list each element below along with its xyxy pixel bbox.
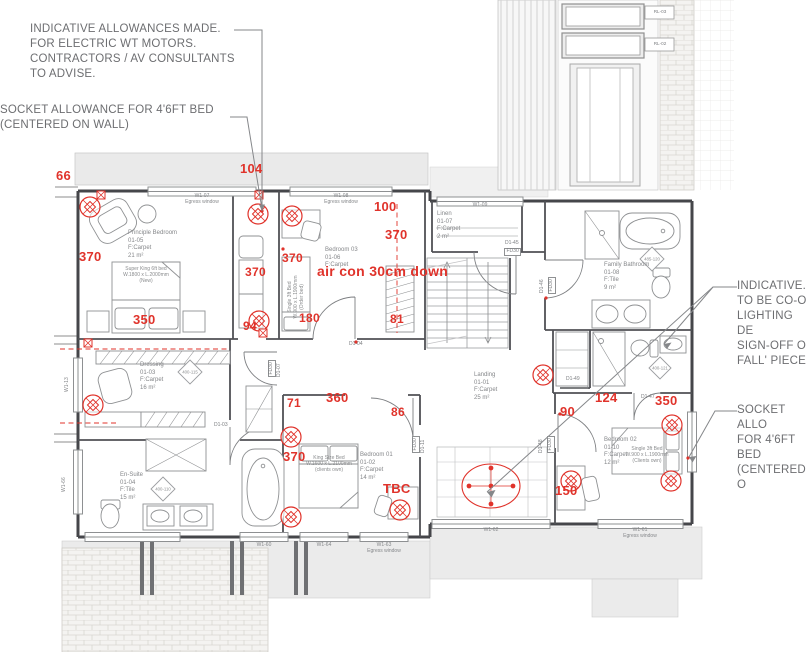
door-tag: FD30 [268,360,276,377]
bedside-table [183,311,205,332]
dimension-label: 124 [595,390,618,405]
dimension-label: 360 [326,390,349,405]
bath-ensuite [242,449,284,526]
dimension-label: 86 [391,405,405,419]
wall-tag: W1-66 [61,477,67,492]
door-tag: FD30 [547,436,555,453]
shower-ensuite2 [593,332,625,386]
window-ensuite [85,533,180,542]
fixture-tag: 400-121 [652,366,668,371]
dimension-label: 90 [560,404,575,419]
side-table-round [138,205,156,223]
dimension-label: 180 [299,311,320,325]
door-tag: D1-46 [540,279,546,293]
floor-plan-drawing [0,0,807,652]
door-tag: D1-48 [539,439,545,453]
shower-family [585,211,619,259]
window-w1-13 [74,358,83,412]
floor-plan-canvas[interactable]: INDICATIVE ALLOWANCES MADE. FOR ELECTRIC… [0,0,807,652]
bath-family [620,213,680,249]
room-label: Family Bathroom 01-08 F:Tile 9 m² [604,262,649,292]
dimension-label: 370 [79,249,102,264]
door-tag: D1-03 [214,423,228,429]
bed-label: Single 3ft Bed W.900 x L.1900mm (Clients… [614,446,680,465]
note-socket-allowance-right: SOCKET ALLO FOR 4'6FT BED (CENTERED O [737,403,807,493]
door-tag: D1-04 [349,342,363,348]
room-label: Dressing 01-03 F:Carpet 16 m² [140,362,164,392]
hall-shelving [246,386,272,432]
window-w1-60 [240,533,288,542]
bed-king [299,444,358,508]
rooflight-tag: RL-02 [646,38,674,50]
fixture-tag: 400-115 [182,370,197,375]
dimension-label: 350 [133,312,156,327]
door-tag: FD30 [504,248,521,256]
toilet-family [652,268,670,298]
vanity-family [592,300,650,328]
note-electric-wt-motors: INDICATIVE ALLOWANCES MADE. FOR ELECTRIC… [30,22,235,82]
wall-tag: W1-60 [257,542,272,548]
wall-tag: W1-13 [64,377,70,392]
fixture-tag: 485-120 [644,257,660,262]
door-tag: D1-49 [566,377,580,383]
door-tag: FD30 [548,277,556,294]
bedside-table [87,311,109,332]
fixture-tag: 400-110 [155,487,170,492]
dimension-label: TBC [383,481,411,496]
dimension-label: 370 [283,449,306,464]
chair-bedroom03 [300,220,322,242]
bed-label: Super King 6ft bed W.1800 x L.2000mm (Ne… [112,266,180,285]
window-w1-64 [300,533,348,542]
dimension-label: 370 [245,265,266,279]
dimension-label: 350 [655,393,678,408]
room-label: Linen 01-07 F:Carpet 2 m² [437,211,460,241]
dimension-label: 150 [555,483,578,498]
wall-tag: W1-08 Egress window [324,193,358,205]
dimension-label: 81 [390,312,404,326]
door-tag: D1-07 [277,363,283,377]
wall-tag: W1-64 [317,542,332,548]
wall-tag: W1-62 [484,527,499,533]
window-bed02-side [688,412,697,472]
vanity-ensuite [143,504,213,530]
note-indicative-right: INDICATIVE. TO BE CO-O LIGHTING DE SIGN-… [737,279,807,369]
room-label: Bedroom 01 01-02 F:Carpet 14 m² [360,452,393,482]
dimension-label: air con 30cm down [317,263,448,279]
room-label: Landing 01-01 F:Carpet 25 m² [474,372,497,402]
dimension-label: 370 [282,251,303,265]
window-w1-66 [74,450,83,514]
bed-label: King Size Bed W.1600 x L.2100mm (clients… [300,455,358,474]
door-tag: FD30 [412,436,420,453]
sink-ensuite2 [660,336,686,353]
door-tag: D1-11 [421,440,427,453]
dimension-label: 66 [56,168,71,183]
rooflight-tag: RL-03 [646,6,674,18]
dimension-label: 104 [240,161,263,176]
door-bedroom02 [558,414,596,452]
room-label: En-Suite 01-04 F:Tile 15 m² [120,472,143,502]
shower-ensuite [146,439,206,471]
wall-tag: W1-07 Egress window [185,193,219,205]
dimension-label: 71 [287,396,301,410]
dimension-label: 370 [385,227,408,242]
wardrobe-dressing-bottom [141,412,205,427]
wall-tag: W1-09 [473,202,488,208]
roof-structures [498,0,674,190]
landing-glazing [437,447,547,517]
wall-tag: W1-61 Egress window [623,527,657,539]
toilet-ensuite [101,500,120,528]
hall-bench [239,236,263,258]
room-label: Principle Bedroom 01-05 F:Carpet 21 m² [128,230,177,260]
door-tag: D1-47 [641,395,655,401]
dimension-label: 94 [243,319,257,333]
door-tag: D1-45 [505,241,519,247]
dimension-label: 100 [374,199,397,214]
wall-tag: W1-63 Egress window [367,542,401,554]
note-socket-allowance-left: SOCKET ALLOWANCE FOR 4'6FT BED (CENTERED… [0,103,214,133]
window-w1-63 [360,533,408,542]
